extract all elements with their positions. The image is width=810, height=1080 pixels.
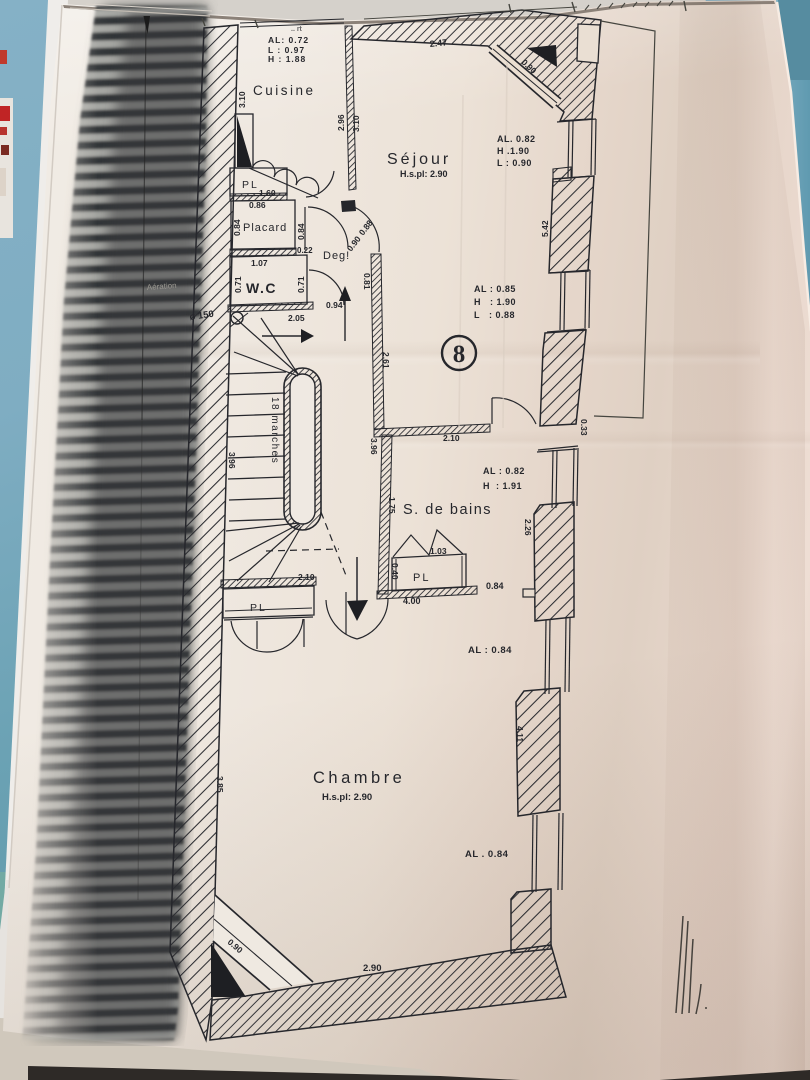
svg-text:Cuisine: Cuisine [253, 83, 316, 98]
svg-text:0.84: 0.84 [486, 581, 504, 591]
svg-text:18 marches: 18 marches [269, 397, 280, 464]
svg-text:H : 1.90: H : 1.90 [474, 297, 516, 307]
svg-text:2.10: 2.10 [298, 572, 315, 582]
svg-text:0.22: 0.22 [297, 246, 313, 255]
svg-text:PL: PL [413, 572, 430, 584]
svg-text:2.96: 2.96 [336, 114, 346, 131]
svg-text:L : 0.88: L : 0.88 [474, 310, 515, 320]
svg-text:Placard: Placard [243, 222, 287, 234]
svg-text:3.96: 3.96 [227, 452, 237, 469]
svg-text:0.86: 0.86 [249, 200, 266, 210]
svg-text:Aération: Aération [147, 281, 177, 292]
svg-text:H.s.pl: 2.90: H.s.pl: 2.90 [400, 169, 448, 179]
svg-text:0.81: 0.81 [362, 273, 372, 290]
svg-text:H.s.pl: 2.90: H.s.pl: 2.90 [322, 792, 372, 803]
svg-text:2.90: 2.90 [363, 963, 382, 974]
svg-text:1.03: 1.03 [430, 546, 447, 556]
svg-text:4.11: 4.11 [515, 726, 525, 742]
svg-text:PL: PL [242, 179, 259, 191]
svg-text:3.96: 3.96 [369, 438, 379, 455]
svg-text:0.90: 0.90 [345, 234, 363, 253]
svg-text:AL . 0.84: AL . 0.84 [465, 849, 509, 860]
svg-text:2.26: 2.26 [523, 519, 533, 536]
svg-text:0.84: 0.84 [296, 223, 306, 240]
svg-text:3.85: 3.85 [215, 776, 225, 793]
svg-text:AL: 0.72: AL: 0.72 [268, 35, 309, 45]
svg-text:1.07: 1.07 [251, 258, 268, 268]
svg-text:3.10: 3.10 [351, 115, 361, 132]
svg-text:H .1.90: H .1.90 [497, 146, 530, 156]
svg-text:0.84: 0.84 [232, 219, 242, 236]
svg-text:2.10: 2.10 [443, 433, 460, 443]
svg-text:2.05: 2.05 [288, 313, 305, 323]
svg-text:2.47: 2.47 [429, 37, 447, 49]
svg-text:2.61: 2.61 [381, 352, 391, 369]
svg-text:H : 1.91: H : 1.91 [483, 481, 522, 491]
svg-text:AL : 0.84: AL : 0.84 [468, 645, 512, 656]
svg-text:L : 0.90: L : 0.90 [497, 158, 532, 168]
svg-text:0.71: 0.71 [233, 276, 243, 293]
svg-text:1.60: 1.60 [259, 188, 276, 198]
svg-text:AL : 0.82: AL : 0.82 [483, 466, 525, 476]
svg-text:5.42: 5.42 [540, 220, 550, 237]
svg-text:4.00: 4.00 [403, 596, 421, 606]
svg-text:W.C: W.C [246, 280, 277, 296]
svg-text:.. rt: .. rt [291, 26, 303, 33]
svg-text:0.88: 0.88 [357, 218, 375, 237]
svg-text:Chambre: Chambre [313, 769, 405, 787]
svg-text:Séjour: Séjour [387, 151, 451, 168]
svg-text:Deg!: Deg! [323, 250, 350, 262]
svg-text:8: 8 [453, 341, 466, 368]
svg-text:0.40: 0.40 [390, 563, 400, 580]
svg-text:0.33: 0.33 [579, 419, 589, 436]
svg-text:S. de bains: S. de bains [403, 502, 492, 518]
svg-text:1.75: 1.75 [387, 497, 397, 514]
svg-text:AL. 0.82: AL. 0.82 [497, 134, 536, 144]
svg-text:3.10: 3.10 [237, 91, 247, 108]
svg-text:H : 1.88: H : 1.88 [268, 54, 306, 64]
svg-text:0.71: 0.71 [296, 276, 306, 293]
svg-text:PL: PL [250, 602, 267, 614]
svg-text:AL : 0.85: AL : 0.85 [474, 284, 516, 294]
svg-text:0.94: 0.94 [326, 300, 343, 310]
